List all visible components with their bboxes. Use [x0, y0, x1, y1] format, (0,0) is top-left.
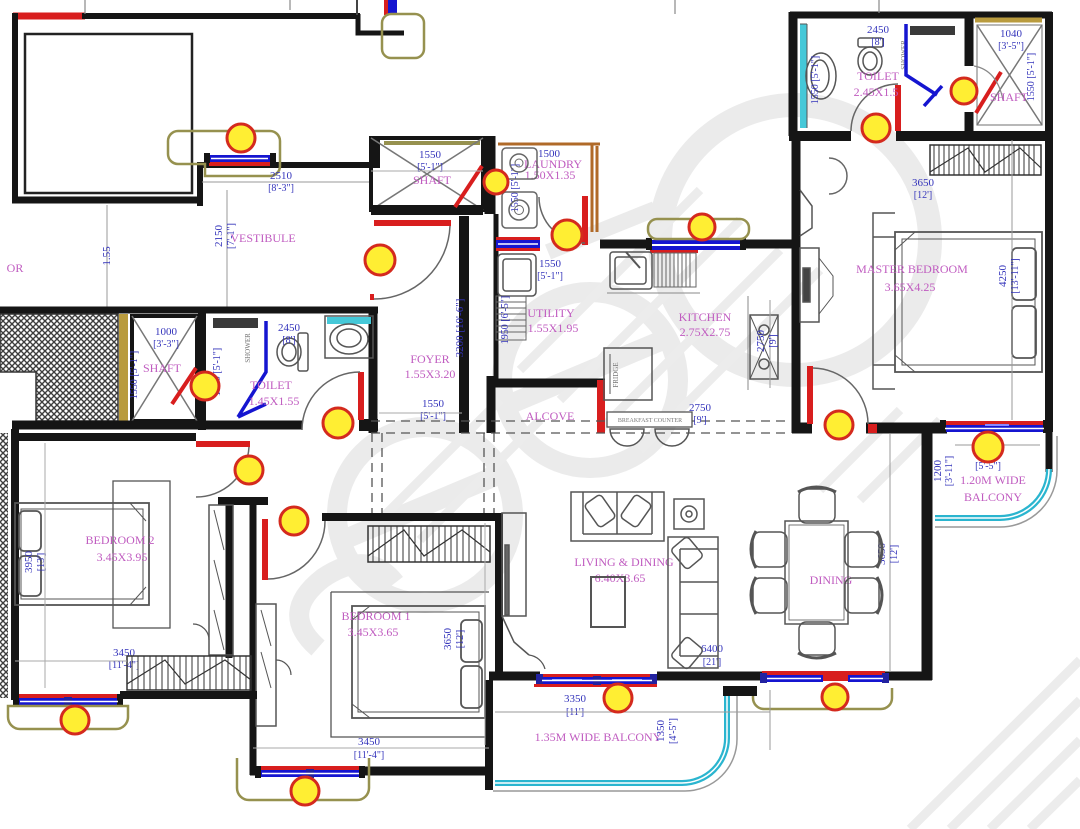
svg-text:3.45X3.65: 3.45X3.65 [348, 625, 399, 639]
svg-text:OR: OR [7, 261, 24, 275]
svg-text:BREAKFAST COUNTER: BREAKFAST COUNTER [618, 418, 682, 424]
svg-text:2750: 2750 [689, 402, 712, 414]
svg-text:[8']: [8'] [871, 37, 884, 48]
svg-text:1.45X1.55: 1.45X1.55 [249, 394, 300, 408]
svg-text:2510: 2510 [270, 170, 293, 182]
svg-text:TOILET: TOILET [857, 69, 899, 83]
svg-text:1.20M WIDE: 1.20M WIDE [960, 473, 1026, 487]
svg-text:ALCOVE: ALCOVE [526, 409, 575, 423]
svg-text:1550 [5'-1"]: 1550 [5'-1"] [129, 351, 140, 399]
svg-text:[9']: [9'] [768, 334, 779, 347]
svg-text:[4'-5"]: [4'-5"] [668, 718, 679, 744]
svg-text:[12']: [12'] [889, 545, 900, 563]
svg-text:3650: 3650 [912, 177, 935, 189]
svg-text:4250: 4250 [997, 265, 1009, 288]
svg-text:[8'-3"]: [8'-3"] [268, 183, 294, 194]
svg-text:2150: 2150 [213, 225, 225, 248]
svg-text:SHOWER: SHOWER [244, 333, 252, 363]
svg-text:VESTIBULE: VESTIBULE [230, 231, 295, 245]
svg-text:SHAFT: SHAFT [413, 173, 452, 187]
svg-text:1550 [5'-1"]: 1550 [5'-1"] [810, 56, 821, 104]
svg-text:BEDROOM 1: BEDROOM 1 [341, 609, 410, 623]
svg-text:[3'-11"]: [3'-11"] [944, 456, 955, 487]
svg-text:1550: 1550 [539, 258, 562, 270]
svg-text:1.50X1.35: 1.50X1.35 [525, 168, 576, 182]
svg-text:1.35M WIDE BALCONY: 1.35M WIDE BALCONY [535, 730, 662, 744]
svg-text:2.75X2.75: 2.75X2.75 [680, 325, 731, 339]
svg-text:2450: 2450 [278, 322, 301, 334]
svg-text:UTILITY: UTILITY [527, 306, 575, 320]
svg-text:3450: 3450 [358, 736, 381, 748]
svg-text:[12']: [12'] [455, 630, 466, 648]
svg-text:1000: 1000 [155, 326, 178, 338]
svg-text:BEDROOM 2: BEDROOM 2 [85, 533, 154, 547]
svg-text:1040: 1040 [1000, 28, 1023, 40]
svg-text:[9']: [9'] [693, 415, 706, 426]
svg-text:MASTER BEDROOM: MASTER BEDROOM [856, 262, 968, 276]
svg-text:2450: 2450 [867, 24, 890, 36]
svg-text:3650: 3650 [442, 628, 454, 651]
svg-text:FRIDGE: FRIDGE [612, 362, 620, 387]
svg-text:2.45X1.5: 2.45X1.5 [854, 85, 899, 99]
svg-text:SHAFT: SHAFT [990, 90, 1029, 104]
svg-text:[8']: [8'] [282, 335, 295, 346]
svg-text:3.65X4.25: 3.65X4.25 [885, 280, 936, 294]
svg-text:[12']: [12'] [914, 190, 932, 201]
svg-text:LIVING & DINING: LIVING & DINING [574, 555, 674, 569]
svg-text:1550: 1550 [422, 398, 445, 410]
svg-text:[5'-1"]: [5'-1"] [537, 271, 563, 282]
svg-text:BALCONY: BALCONY [964, 490, 1022, 504]
svg-text:1.55X3.20: 1.55X3.20 [405, 367, 456, 381]
svg-text:3.45X3.95: 3.45X3.95 [97, 550, 148, 564]
svg-text:1.55X1.95: 1.55X1.95 [528, 321, 579, 335]
svg-text:KITCHEN: KITCHEN [679, 310, 732, 324]
svg-text:[11'-4"]: [11'-4"] [109, 660, 140, 671]
svg-text:3950: 3950 [23, 551, 35, 574]
svg-text:1550: 1550 [419, 149, 442, 161]
svg-text:[3'-3"]: [3'-3"] [153, 339, 179, 350]
svg-text:TOILET: TOILET [250, 378, 292, 392]
svg-text:3200 [10'-6"]: 3200 [10'-6"] [454, 299, 466, 358]
svg-text:1350: 1350 [655, 720, 667, 743]
svg-text:6400: 6400 [701, 643, 724, 655]
svg-text:FOYER: FOYER [410, 352, 449, 366]
svg-text:1.55: 1.55 [101, 246, 113, 266]
svg-text:1950 [6'-5"]: 1950 [6'-5"] [500, 296, 511, 344]
svg-text:[3'-5"]: [3'-5"] [998, 41, 1024, 52]
svg-text:3350: 3350 [564, 693, 587, 705]
svg-text:1200: 1200 [932, 460, 944, 483]
svg-text:2750: 2750 [755, 330, 767, 353]
svg-text:[13'-11"]: [13'-11"] [1010, 258, 1021, 294]
svg-text:SHAFT: SHAFT [143, 361, 182, 375]
